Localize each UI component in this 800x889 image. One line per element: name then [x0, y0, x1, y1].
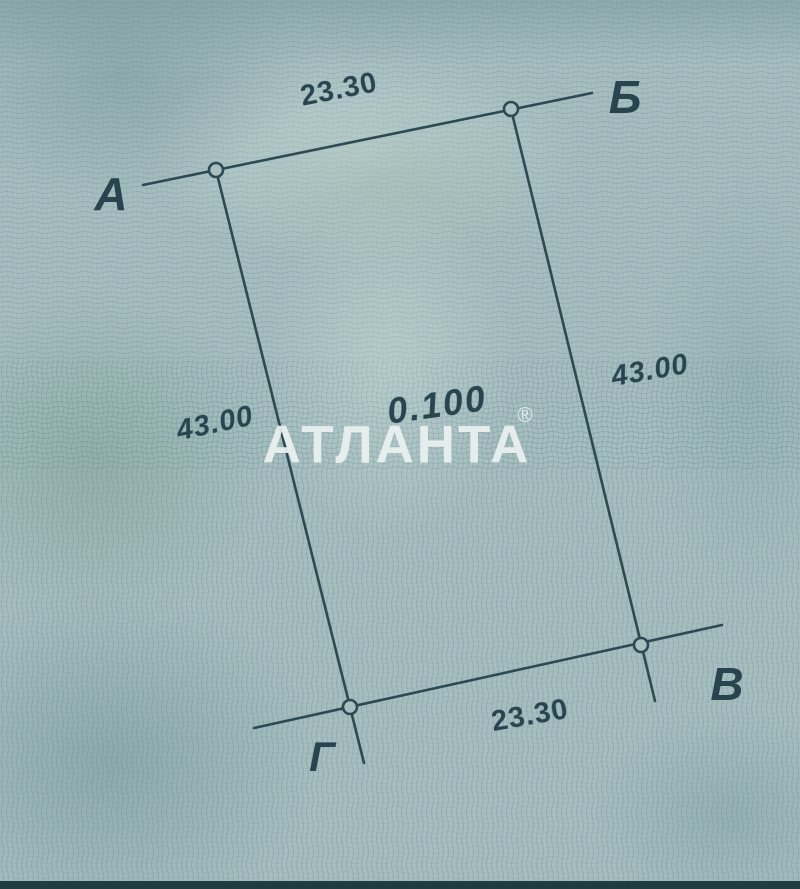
- side-bottom-line-g-v: [254, 625, 722, 728]
- dimension-right: 43.00: [609, 348, 691, 394]
- scanned-plot-sketch: А Б В Г 23.30 43.00 43.00 23.30 0.100 АТ…: [0, 0, 800, 889]
- corner-label-b: Б: [609, 70, 642, 124]
- paper-green-tint: [235, 105, 545, 255]
- dimension-left: 43.00: [174, 400, 257, 448]
- watermark-text: АТЛАНТА: [263, 415, 532, 476]
- corner-point-g: [343, 700, 357, 714]
- corner-label-v: В: [710, 657, 743, 711]
- scan-edge-bar: [0, 881, 800, 889]
- dimension-top: 23.30: [298, 66, 380, 113]
- side-top-line-a-b: [143, 93, 592, 185]
- paper-texture: [0, 0, 800, 889]
- corner-label-g: Г: [309, 733, 335, 781]
- dimension-bottom: 23.30: [489, 693, 571, 739]
- paper-highlight-center: [265, 195, 515, 535]
- area-label: 0.100: [385, 377, 490, 433]
- paper-shading-top: [0, 0, 800, 64]
- paper-shading-right: [645, 170, 800, 600]
- paper-highlight-upper: [140, 50, 580, 260]
- paper-shading-top-left: [0, 0, 310, 200]
- paper-shading-left: [0, 290, 270, 630]
- corner-point-b: [504, 102, 518, 116]
- corner-point-a: [209, 163, 223, 177]
- paper-shading-bottom-left: [0, 590, 320, 889]
- side-right-line-b-v: [511, 109, 655, 701]
- corner-point-v: [634, 638, 648, 652]
- plot-diagram: [0, 0, 800, 889]
- paper-shading-bottom-right: [590, 710, 800, 889]
- corner-label-a: А: [94, 167, 127, 221]
- registered-trademark-icon: ®: [517, 404, 532, 428]
- side-left-line-a-g: [216, 170, 364, 763]
